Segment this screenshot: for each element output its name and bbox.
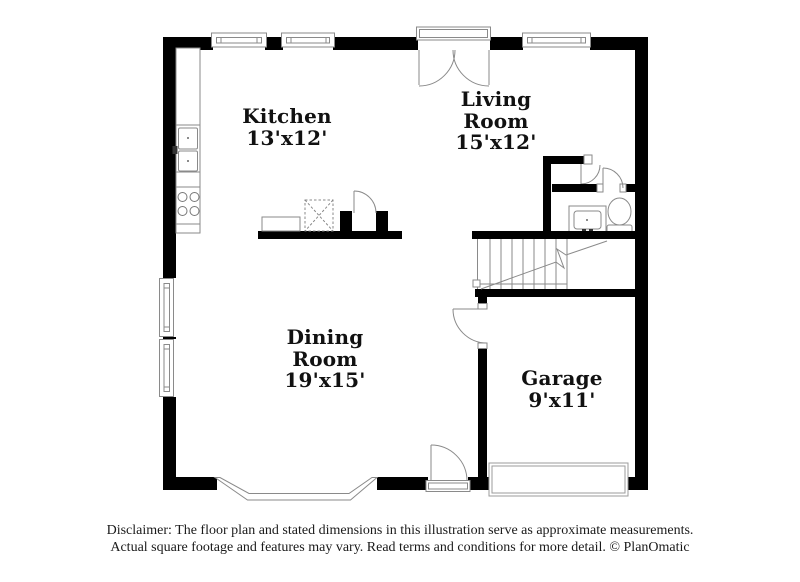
stair-direction-line	[481, 241, 607, 289]
room-dims: 15'x12'	[455, 132, 536, 154]
stairs-icon	[473, 239, 607, 289]
living-room-window-icon	[523, 33, 591, 47]
outer-walls	[163, 37, 648, 490]
toilet-icon	[607, 198, 632, 234]
dining-window-icon	[160, 340, 174, 397]
pantry-closet	[340, 191, 388, 231]
room-dims: 9'x11'	[521, 390, 602, 412]
door-jamb	[478, 343, 487, 349]
disclaimer-text: Disclaimer: The floor plan and stated di…	[0, 522, 800, 556]
floor-plan-drawing	[0, 0, 800, 582]
door-jamb	[597, 184, 603, 192]
bathroom-sink-icon	[569, 206, 606, 234]
kitchen-island-counter	[262, 217, 300, 231]
room-name: Room	[455, 111, 536, 133]
floor-plan: Kitchen 13'x12' Living Room 15'x12' Dini…	[0, 0, 800, 582]
door-jamb	[478, 304, 487, 310]
closet-door-icon	[581, 164, 600, 184]
garage-walls	[478, 297, 487, 477]
front-door-icon	[417, 27, 491, 86]
room-label-garage: Garage 9'x11'	[521, 368, 602, 411]
room-dims: 13'x12'	[242, 128, 332, 150]
room-dims: 19'x15'	[284, 370, 365, 392]
room-label-living-room: Living Room 15'x12'	[455, 89, 536, 154]
garage-door-icon	[489, 463, 628, 496]
door-jamb	[584, 155, 592, 164]
kitchen-window-icon	[212, 33, 267, 47]
kitchen-window-icon	[282, 33, 335, 47]
appliance-dashed-box	[305, 200, 333, 231]
room-name: Room	[284, 349, 365, 371]
disclaimer-line-2: Actual square footage and features may v…	[0, 539, 800, 556]
garage-entry-door-icon	[453, 309, 487, 343]
room-name: Kitchen	[242, 106, 332, 128]
room-label-dining-room: Dining Room 19'x15'	[284, 327, 365, 392]
stair-walls	[472, 231, 648, 297]
room-label-kitchen: Kitchen 13'x12'	[242, 106, 332, 149]
exterior-door-icon	[426, 445, 470, 492]
dining-window-icon	[160, 279, 174, 337]
room-name: Dining	[284, 327, 365, 349]
peninsula-wall	[258, 231, 402, 239]
room-name: Garage	[521, 368, 602, 390]
room-name: Living	[455, 89, 536, 111]
disclaimer-line-1: Disclaimer: The floor plan and stated di…	[0, 522, 800, 539]
pantry-door-icon	[354, 191, 376, 213]
